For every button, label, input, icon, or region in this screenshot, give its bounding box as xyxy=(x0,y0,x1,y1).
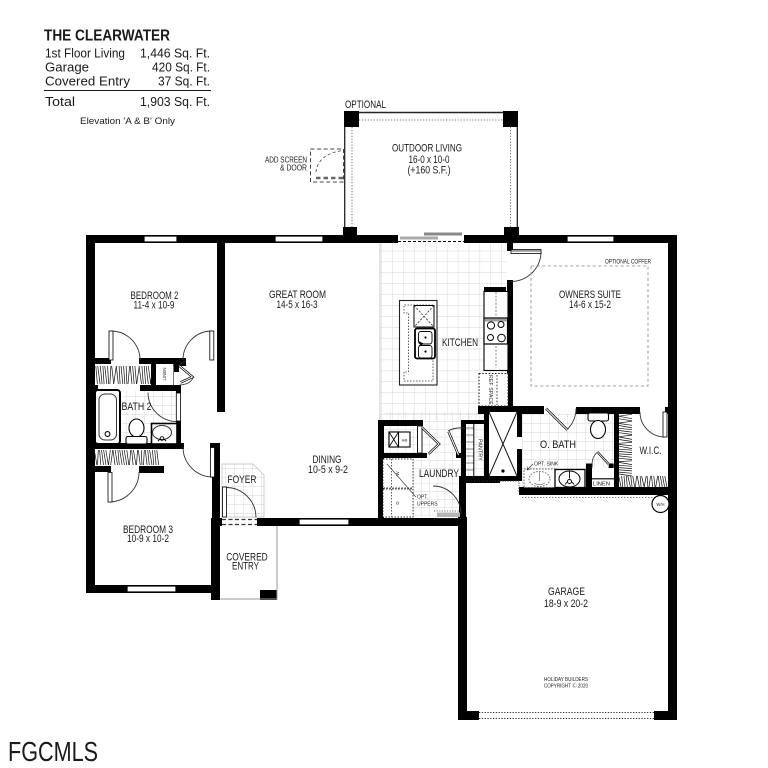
svg-text:11-4 x 10-9: 11-4 x 10-9 xyxy=(134,300,175,312)
svg-text:KITCHEN: KITCHEN xyxy=(442,337,478,349)
svg-text:OPT.: OPT. xyxy=(417,495,428,501)
svg-text:O. BATH: O. BATH xyxy=(540,439,576,451)
svg-text:420 Sq. Ft.: 420 Sq. Ft. xyxy=(152,60,210,75)
svg-text:PANTRY: PANTRY xyxy=(477,439,483,461)
svg-text:ENTRY: ENTRY xyxy=(232,561,259,573)
svg-text:D: D xyxy=(395,501,400,504)
svg-text:Total: Total xyxy=(45,94,75,109)
svg-text:1,446 Sq. Ft.: 1,446 Sq. Ft. xyxy=(140,46,210,61)
svg-text:UPPERS: UPPERS xyxy=(417,502,438,508)
svg-text:Covered Entry: Covered Entry xyxy=(45,74,131,89)
svg-text:Garage: Garage xyxy=(45,60,89,75)
svg-text:OPTIONAL: OPTIONAL xyxy=(345,99,386,111)
svg-text:OUTDOOR LIVING: OUTDOOR LIVING xyxy=(392,143,462,155)
svg-text:LINEN: LINEN xyxy=(593,482,610,488)
svg-text:BATH 2: BATH 2 xyxy=(122,401,152,413)
svg-text:1st Floor Living: 1st Floor Living xyxy=(45,46,125,61)
svg-text:OPT. SINK: OPT. SINK xyxy=(534,462,559,468)
svg-text:18-9 x 20-2: 18-9 x 20-2 xyxy=(544,598,588,610)
svg-text:Elevation 'A & B' Only: Elevation 'A & B' Only xyxy=(80,116,175,127)
svg-text:REF SPACE: REF SPACE xyxy=(487,375,493,405)
svg-text:LINEN: LINEN xyxy=(162,368,167,381)
svg-text:10-9 x 10-2: 10-9 x 10-2 xyxy=(127,533,169,545)
svg-text:LAUNDRY: LAUNDRY xyxy=(419,468,460,480)
svg-text:GARAGE: GARAGE xyxy=(548,586,585,598)
svg-text:COPYRIGHT Ⓒ 2020: COPYRIGHT Ⓒ 2020 xyxy=(544,682,588,690)
svg-text:1,903 Sq. Ft.: 1,903 Sq. Ft. xyxy=(140,94,210,109)
svg-text:14-5 x 16-3: 14-5 x 16-3 xyxy=(277,299,318,311)
svg-text:W.I.C.: W.I.C. xyxy=(640,445,662,457)
svg-text:(+160 S.F.): (+160 S.F.) xyxy=(408,165,451,177)
svg-text:OPTIONAL COFFER: OPTIONAL COFFER xyxy=(605,259,651,266)
svg-text:FOYER: FOYER xyxy=(228,474,257,486)
svg-text:A/B: A/B xyxy=(402,439,408,443)
svg-text:37 Sq. Ft.: 37 Sq. Ft. xyxy=(158,74,210,89)
svg-text:W/H: W/H xyxy=(656,502,664,507)
svg-text:HOLIDAY BUILDERS: HOLIDAY BUILDERS xyxy=(544,677,588,683)
svg-text:THE CLEARWATER: THE CLEARWATER xyxy=(44,28,170,45)
svg-text:FGCMLS: FGCMLS xyxy=(8,736,98,767)
svg-text:14-6 x 15-2: 14-6 x 15-2 xyxy=(569,299,611,311)
svg-text:& DOOR: & DOOR xyxy=(280,164,307,173)
svg-text:10-5 x 9-2: 10-5 x 9-2 xyxy=(308,464,348,476)
